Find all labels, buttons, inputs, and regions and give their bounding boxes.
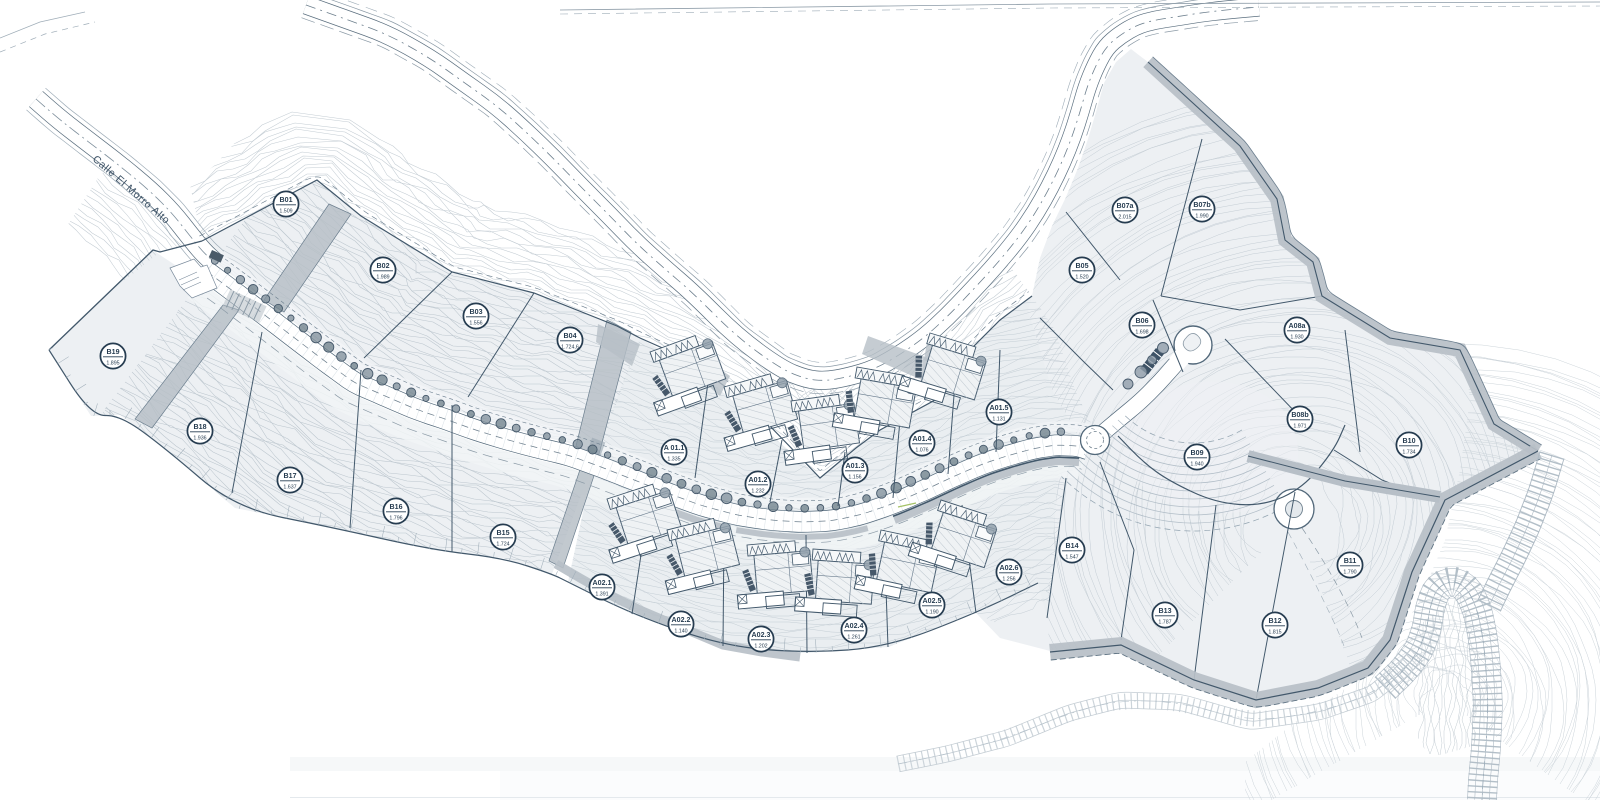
- svg-text:A02.3: A02.3: [752, 631, 771, 639]
- svg-text:A02.1: A02.1: [593, 579, 612, 587]
- svg-text:1.509: 1.509: [279, 208, 292, 214]
- svg-text:1.256: 1.256: [1002, 576, 1015, 582]
- svg-text:1.790: 1.790: [1343, 569, 1356, 575]
- svg-text:1.520: 1.520: [1075, 274, 1088, 280]
- svg-text:1.724: 1.724: [496, 541, 509, 547]
- svg-text:1.895: 1.895: [106, 360, 119, 366]
- svg-text:1.391: 1.391: [595, 591, 608, 597]
- svg-text:1.140: 1.140: [674, 628, 687, 634]
- svg-text:B02: B02: [376, 262, 389, 270]
- svg-text:1.335: 1.335: [667, 456, 680, 462]
- svg-text:1.156: 1.156: [848, 474, 861, 480]
- svg-text:1.131: 1.131: [992, 416, 1005, 422]
- svg-text:1.556: 1.556: [469, 320, 482, 326]
- svg-text:A02.2: A02.2: [672, 616, 691, 624]
- svg-text:1.940: 1.940: [1190, 461, 1203, 467]
- svg-text:B04: B04: [563, 332, 576, 340]
- svg-text:1.076: 1.076: [915, 447, 928, 453]
- svg-text:1.930: 1.930: [1290, 334, 1303, 340]
- svg-text:1.190: 1.190: [925, 609, 938, 615]
- svg-text:1.787: 1.787: [1158, 619, 1171, 625]
- svg-text:A01.4: A01.4: [913, 435, 932, 443]
- svg-text:1.990: 1.990: [1195, 213, 1208, 219]
- svg-text:A01.3: A01.3: [846, 462, 865, 470]
- svg-text:B17: B17: [283, 472, 296, 480]
- svg-text:1.202: 1.202: [754, 643, 767, 649]
- svg-text:B12: B12: [1268, 617, 1281, 625]
- svg-text:B19: B19: [106, 348, 119, 356]
- svg-text:A02.5: A02.5: [923, 597, 942, 605]
- svg-text:A01.5: A01.5: [990, 404, 1009, 412]
- svg-text:B06: B06: [1135, 317, 1148, 325]
- svg-text:1.547: 1.547: [1065, 554, 1078, 560]
- svg-text:1.815: 1.815: [1268, 629, 1281, 635]
- svg-text:B01: B01: [279, 196, 292, 204]
- svg-text:B05: B05: [1075, 262, 1088, 270]
- svg-text:B07a: B07a: [1117, 202, 1134, 210]
- svg-text:2.015: 2.015: [1118, 214, 1131, 220]
- svg-text:B09: B09: [1190, 449, 1203, 457]
- svg-text:A01.2: A01.2: [749, 476, 768, 484]
- svg-text:1.698: 1.698: [1135, 329, 1148, 335]
- svg-text:A02.6: A02.6: [1000, 564, 1019, 572]
- svg-text:1.637: 1.637: [283, 484, 296, 490]
- svg-text:B03: B03: [469, 308, 482, 316]
- svg-text:1.936: 1.936: [193, 435, 206, 441]
- svg-text:1.734: 1.734: [1402, 449, 1415, 455]
- svg-text:1.261: 1.261: [847, 634, 860, 640]
- svg-text:1.232: 1.232: [751, 488, 764, 494]
- svg-text:B08b: B08b: [1291, 411, 1309, 419]
- svg-text:B11: B11: [1344, 557, 1357, 565]
- svg-text:B10: B10: [1402, 437, 1415, 445]
- svg-text:B13: B13: [1158, 607, 1171, 615]
- svg-text:1.989: 1.989: [376, 274, 389, 280]
- svg-text:1.971: 1.971: [1293, 423, 1306, 429]
- svg-text:B16: B16: [389, 503, 402, 511]
- svg-text:A02.4: A02.4: [845, 622, 864, 630]
- svg-text:1.724,6: 1.724,6: [561, 344, 579, 350]
- svg-text:A 01.1: A 01.1: [664, 444, 685, 452]
- svg-text:A08a: A08a: [1289, 322, 1306, 330]
- svg-text:B15: B15: [496, 529, 509, 537]
- svg-text:B14: B14: [1065, 542, 1078, 550]
- svg-text:B07b: B07b: [1193, 201, 1211, 209]
- svg-text:B18: B18: [193, 423, 206, 431]
- svg-text:1.796: 1.796: [389, 515, 402, 521]
